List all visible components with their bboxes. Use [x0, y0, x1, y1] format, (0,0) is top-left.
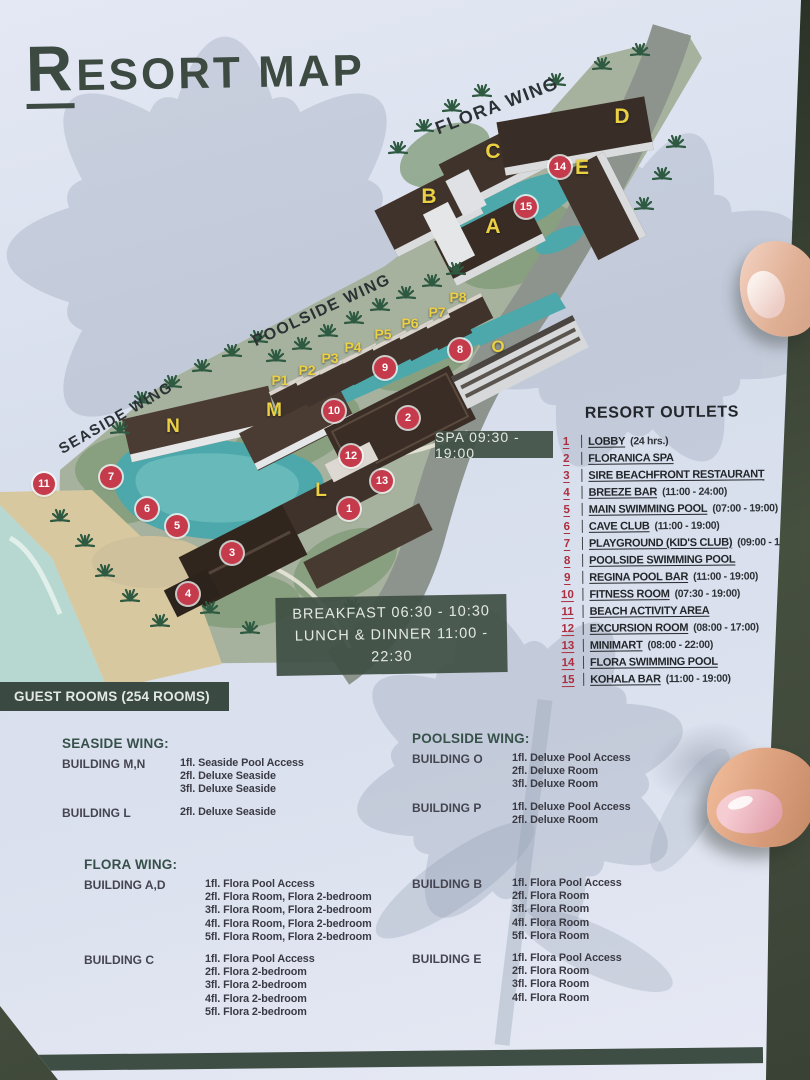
map-marker-5: 5 — [166, 515, 188, 537]
title-initial: R — [25, 36, 74, 109]
map-marker-2: 2 — [397, 407, 419, 429]
map-marker-6: 6 — [136, 498, 158, 520]
floor-line: 2fl. Deluxe Room — [512, 765, 631, 778]
floor-line: 5fl. Flora Room — [512, 930, 622, 943]
building-row: BUILDING C1fl. Flora Pool Access2fl. Flo… — [84, 953, 372, 1019]
building-floors: 1fl. Flora Pool Access2fl. Flora Room3fl… — [512, 877, 622, 943]
outlet-divider — [582, 554, 583, 567]
building-label-e: E — [575, 156, 589, 180]
lunch-dinner-hours: LUNCH & DINNER 11:00 - 22:30 — [276, 622, 508, 670]
floor-line: 2fl. Flora Room — [512, 890, 622, 903]
outlet-name: KOHALA BAR — [590, 673, 661, 686]
building-label-o: O — [491, 337, 504, 357]
building-label-p6: P6 — [401, 315, 418, 331]
outlet-divider — [583, 673, 584, 686]
outlet-divider — [582, 571, 583, 584]
outlet-hours: (11:00 - 19:00) — [666, 672, 731, 685]
resort-outlets-title: RESORT OUTLETS — [585, 403, 809, 423]
map-marker-1: 1 — [338, 498, 360, 520]
outlet-number: 15 — [557, 673, 579, 685]
page-title: RESORT MAP — [25, 31, 365, 109]
outlet-name: BEACH ACTIVITY AREA — [590, 604, 710, 617]
floor-line: 2fl. Flora Room — [512, 965, 622, 978]
building-floors: 2fl. Deluxe Seaside — [180, 806, 276, 820]
building-name: BUILDING L — [62, 806, 180, 820]
floor-line: 4fl. Flora 2-bedroom — [205, 993, 315, 1006]
map-marker-15: 15 — [515, 196, 537, 218]
building-label-d: D — [614, 105, 629, 129]
outlet-name: EXCURSION ROOM — [590, 621, 689, 634]
building-row: BUILDING L2fl. Deluxe Seaside — [62, 806, 304, 820]
map-marker-9: 9 — [374, 357, 396, 379]
map-marker-11: 11 — [33, 473, 55, 495]
floor-line: 2fl. Deluxe Room — [512, 814, 631, 827]
outlet-number: 12 — [557, 622, 579, 634]
floor-line: 1fl. Deluxe Pool Access — [512, 752, 631, 765]
outlet-divider — [583, 656, 584, 669]
floor-line: 4fl. Flora Room — [512, 992, 622, 1005]
outlet-row: 2FLORANICA SPA — [555, 448, 809, 467]
building-name: BUILDING P — [412, 801, 512, 827]
building-floors: 1fl. Deluxe Pool Access2fl. Deluxe Room3… — [512, 752, 631, 792]
building-row: BUILDING M,N1fl. Seaside Pool Access2fl.… — [62, 757, 304, 797]
guest-rooms-flora-wing: FLORA WING:BUILDING A,D1fl. Flora Pool A… — [84, 857, 372, 1028]
outlet-number: 8 — [556, 554, 578, 566]
building-label-m: M — [266, 400, 282, 422]
outlet-hours: (11:00 - 19:00) — [693, 570, 758, 583]
building-name: BUILDING M,N — [62, 757, 180, 797]
finger-nail — [742, 266, 791, 323]
outlet-name: CAVE CLUB — [589, 520, 650, 533]
floor-line: 3fl. Flora Room, Flora 2-bedroom — [205, 904, 372, 917]
floor-line: 5fl. Flora Room, Flora 2-bedroom — [205, 931, 372, 944]
outlet-hours: (11:00 - 24:00) — [662, 485, 727, 498]
building-floors: 1fl. Seaside Pool Access2fl. Deluxe Seas… — [180, 757, 304, 797]
floor-line: 1fl. Deluxe Pool Access — [512, 801, 631, 814]
map-marker-13: 13 — [371, 470, 393, 492]
guest-rooms-flora-wing-b-e: BUILDING B1fl. Flora Pool Access2fl. Flo… — [412, 877, 622, 1014]
outlet-divider — [582, 520, 583, 533]
outlet-number: 9 — [556, 571, 578, 583]
building-name: BUILDING O — [412, 752, 512, 792]
map-marker-12: 12 — [340, 445, 362, 467]
outlet-name: MAIN SWIMMING POOL — [589, 502, 708, 515]
outlet-hours: (24 hrs.) — [630, 435, 668, 447]
floor-line: 1fl. Flora Pool Access — [512, 952, 622, 965]
building-label-n: N — [166, 416, 180, 438]
outlet-hours: (11:00 - 19:00) — [654, 519, 719, 532]
building-label-p1: P1 — [271, 372, 288, 388]
floor-line: 4fl. Flora Room, Flora 2-bedroom — [205, 918, 372, 931]
outlet-number: 3 — [555, 469, 577, 481]
outlet-hours: (08:00 - 22:00) — [647, 638, 713, 651]
floor-line: 1fl. Flora Pool Access — [512, 877, 622, 890]
floor-line: 3fl. Flora 2-bedroom — [205, 979, 315, 992]
building-label-p4: P4 — [344, 339, 361, 355]
outlet-divider — [583, 639, 584, 652]
building-label-c: C — [485, 140, 500, 164]
outlet-name: PLAYGROUND (KID'S CLUB) — [589, 536, 732, 549]
building-label-a: A — [485, 215, 500, 239]
meal-hours-note: BREAKFAST 06:30 - 10:30 LUNCH & DINNER 1… — [275, 594, 507, 676]
building-floors: 1fl. Flora Pool Access2fl. Flora Room3fl… — [512, 952, 622, 1005]
building-label-p8: P8 — [449, 289, 466, 305]
building-label-p7: P7 — [428, 304, 445, 320]
outlet-hours: (07:00 - 19:00) — [712, 502, 778, 515]
title-rest: ESORT MAP — [76, 46, 365, 101]
building-row: BUILDING A,D1fl. Flora Pool Access2fl. F… — [84, 878, 372, 944]
building-name: BUILDING A,D — [84, 878, 205, 944]
floor-line: 5fl. Flora 2-bedroom — [205, 1006, 315, 1019]
outlet-divider — [581, 435, 582, 448]
outlet-number: 7 — [556, 537, 578, 549]
thumb-nail — [714, 786, 784, 837]
building-name: BUILDING B — [412, 877, 512, 943]
building-row: BUILDING O1fl. Deluxe Pool Access2fl. De… — [412, 752, 631, 792]
resort-outlets-panel: RESORT OUTLETS 1LOBBY(24 hrs.)2FLORANICA… — [555, 403, 810, 688]
building-label-l: L — [315, 480, 327, 502]
outlet-divider — [581, 469, 582, 482]
map-marker-10: 10 — [323, 400, 345, 422]
building-label-p5: P5 — [374, 326, 391, 342]
guest-rooms-header: GUEST ROOMS (254 ROOMS) — [0, 682, 229, 711]
building-name: BUILDING C — [84, 953, 205, 1019]
building-label-b: B — [421, 185, 436, 209]
outlet-hours: (09:00 - 17:00) — [737, 535, 803, 548]
outlet-number: 11 — [557, 605, 579, 617]
floor-line: 3fl. Flora Room — [512, 978, 622, 991]
outlet-divider — [582, 503, 583, 516]
building-floors: 1fl. Flora Pool Access2fl. Flora Room, F… — [205, 878, 372, 944]
floor-line: 4fl. Flora Room — [512, 917, 622, 930]
map-marker-8: 8 — [449, 339, 471, 361]
floor-line: 2fl. Deluxe Seaside — [180, 806, 276, 819]
floor-line: 2fl. Flora 2-bedroom — [205, 966, 315, 979]
map-marker-3: 3 — [221, 542, 243, 564]
outlet-hours: (08:00 - 17:00) — [693, 621, 759, 634]
outlet-row: 15KOHALA BAR(11:00 - 19:00) — [557, 669, 810, 688]
building-label-p3: P3 — [321, 350, 338, 366]
outlet-name: REGINA POOL BAR — [589, 570, 688, 583]
building-label-p2: P2 — [298, 362, 315, 378]
resort-outlets-list: 1LOBBY(24 hrs.)2FLORANICA SPA3SIRE BEACH… — [555, 431, 810, 688]
building-name: BUILDING E — [412, 952, 512, 1005]
outlet-number: 4 — [555, 486, 577, 498]
outlet-name: MINIMART — [590, 639, 643, 651]
outlet-number: 1 — [555, 435, 577, 447]
outlet-name: LOBBY — [588, 435, 625, 447]
map-marker-7: 7 — [100, 466, 122, 488]
outlet-name: POOLSIDE SWIMMING POOL — [589, 553, 735, 566]
resort-map-page: RESORT MAP FLORA WINGPOOLSIDE WINGSEASID… — [0, 0, 810, 1080]
outlet-number: 2 — [555, 452, 577, 464]
outlet-number: 6 — [556, 520, 578, 532]
building-floors: 1fl. Deluxe Pool Access2fl. Deluxe Room — [512, 801, 631, 827]
floor-line: 1fl. Flora Pool Access — [205, 878, 372, 891]
outlet-row: 1LOBBY(24 hrs.) — [555, 431, 809, 450]
building-row: BUILDING P1fl. Deluxe Pool Access2fl. De… — [412, 801, 631, 827]
outlet-name: SIRE BEACHFRONT RESTAURANT — [588, 468, 764, 482]
outlet-number: 10 — [556, 588, 578, 600]
outlet-row: 14FLORA SWIMMING POOL — [557, 652, 810, 671]
floor-line: 3fl. Deluxe Room — [512, 778, 631, 791]
outlet-divider — [583, 605, 584, 618]
outlet-number: 14 — [557, 656, 579, 668]
outlet-divider — [581, 452, 582, 465]
building-row: BUILDING B1fl. Flora Pool Access2fl. Flo… — [412, 877, 622, 943]
photo-scene: RESORT MAP FLORA WINGPOOLSIDE WINGSEASID… — [0, 0, 810, 1080]
floor-line: 2fl. Flora Room, Flora 2-bedroom — [205, 891, 372, 904]
building-row: BUILDING E1fl. Flora Pool Access2fl. Flo… — [412, 952, 622, 1005]
floor-line: 3fl. Deluxe Seaside — [180, 783, 304, 796]
map-marker-4: 4 — [177, 583, 199, 605]
outlet-divider — [582, 537, 583, 550]
guest-rooms-poolside-wing: POOLSIDE WING:BUILDING O1fl. Deluxe Pool… — [412, 731, 631, 836]
outlet-hours: (07:30 - 19:00) — [674, 587, 740, 600]
outlet-name: FLORA SWIMMING POOL — [590, 655, 718, 668]
wing-header: SEASIDE WING: — [62, 736, 304, 751]
outlet-divider — [583, 622, 584, 635]
outlet-divider — [581, 486, 582, 499]
outlet-divider — [582, 588, 583, 601]
floor-line: 2fl. Deluxe Seaside — [180, 770, 304, 783]
wing-header: FLORA WING: — [84, 857, 372, 872]
spa-hours-note: SPA 09:30 - 19:00 — [435, 431, 553, 458]
floor-line: 1fl. Flora Pool Access — [205, 953, 315, 966]
outlet-number: 5 — [556, 503, 578, 515]
wing-header: POOLSIDE WING: — [412, 731, 631, 746]
outlet-name: BREEZE BAR — [588, 486, 657, 499]
map-marker-14: 14 — [549, 156, 571, 178]
guest-rooms-seaside-wing: SEASIDE WING:BUILDING M,N1fl. Seaside Po… — [62, 736, 304, 829]
building-floors: 1fl. Flora Pool Access2fl. Flora 2-bedro… — [205, 953, 315, 1019]
outlet-number: 13 — [557, 639, 579, 651]
floor-line: 3fl. Flora Room — [512, 903, 622, 916]
outlet-name: FITNESS ROOM — [589, 588, 669, 601]
floor-line: 1fl. Seaside Pool Access — [180, 757, 304, 770]
outlet-name: FLORANICA SPA — [588, 452, 673, 465]
